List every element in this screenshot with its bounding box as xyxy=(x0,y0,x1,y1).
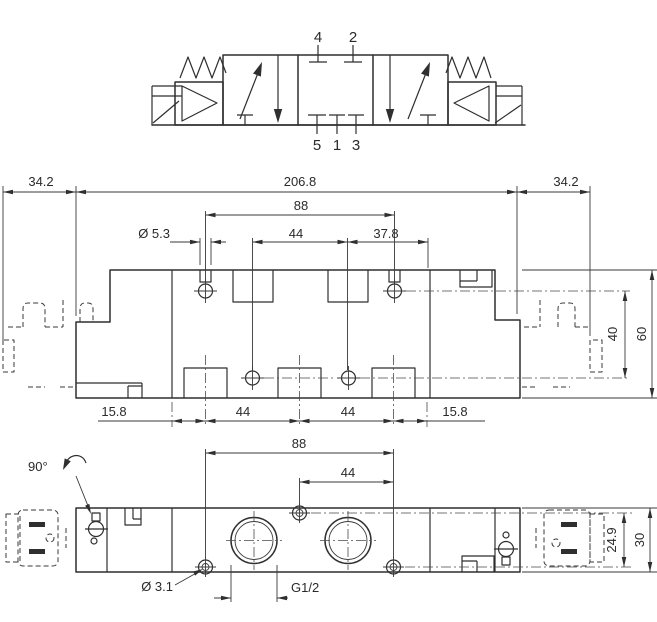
connector-pin xyxy=(561,549,577,554)
rotation-label: 90° xyxy=(28,459,48,474)
dim-body-depth: 30 xyxy=(632,533,647,547)
step-notch-detail xyxy=(462,556,494,572)
bottom-view: 88 44 90° Ø 3.1 G1/2 24.9 30 xyxy=(6,436,657,602)
connector-pin xyxy=(561,522,577,527)
port-label-2: 2 xyxy=(349,29,357,46)
bottom-view-dimensions: 88 44 90° Ø 3.1 G1/2 24.9 30 xyxy=(28,436,657,602)
left-solenoid-symbol xyxy=(152,57,226,125)
side-view: 34.2 206.8 34.2 88 Ø 5.3 44 37.8 15.8 44… xyxy=(3,174,657,427)
port-cutout xyxy=(233,270,273,302)
flow-arrow xyxy=(408,73,426,119)
right-spring-icon xyxy=(446,57,491,78)
dim-port-pitch-top: 44 xyxy=(289,226,303,241)
left-plug-connector-phantom xyxy=(3,300,93,387)
dim-body-length: 206.8 xyxy=(284,174,317,189)
port-label-1: 1 xyxy=(333,137,341,154)
dim-small-hole-dia: Ø 3.1 xyxy=(141,579,173,594)
thread-label: G1/2 xyxy=(291,580,319,595)
side-view-dimensions: 34.2 206.8 34.2 88 Ø 5.3 44 37.8 15.8 44… xyxy=(3,174,657,423)
manual-override-right xyxy=(494,532,518,565)
dim-edge-to-port-right: 15.8 xyxy=(442,404,467,419)
step-notch-detail xyxy=(460,270,492,287)
right-pilot-triangle-icon xyxy=(454,86,489,121)
body-section-lines xyxy=(107,508,495,572)
technical-drawing-page: 4 2 5 1 3 xyxy=(0,0,657,622)
dim-hole-row-offset: 24.9 xyxy=(604,527,619,552)
port-label-3: 3 xyxy=(352,137,360,154)
dim-hole-to-port: 44 xyxy=(341,465,355,480)
blocked-ports-top-icon xyxy=(309,55,362,62)
dim-port-pitch-1: 44 xyxy=(236,404,250,419)
valve-technical-drawing: 4 2 5 1 3 xyxy=(0,0,657,622)
left-spring-icon xyxy=(180,57,226,78)
small-mounting-holes xyxy=(195,503,404,577)
dim-port-pitch-2: 44 xyxy=(341,404,355,419)
dim-body-height: 60 xyxy=(634,327,649,341)
port-label-4: 4 xyxy=(314,29,322,46)
mounting-hole-symbols xyxy=(194,279,406,390)
blocked-port-icon xyxy=(420,115,436,125)
blocked-port-icon xyxy=(237,115,253,125)
port-cutout xyxy=(328,270,368,302)
connector-pin xyxy=(29,549,45,554)
end-plate-detail xyxy=(76,383,142,398)
dim-hole-span: 88 xyxy=(292,436,306,451)
right-plug-connector-phantom xyxy=(536,510,604,566)
valve-positions xyxy=(223,55,448,125)
dim-offset-right: 34.2 xyxy=(553,174,578,189)
step-notch-detail xyxy=(125,508,141,525)
left-pilot-triangle-icon xyxy=(182,86,217,121)
dim-edge-to-port-left: 15.8 xyxy=(101,404,126,419)
pneumatic-circuit-symbol: 4 2 5 1 3 xyxy=(152,29,525,154)
dim-hole-rows-span: 40 xyxy=(605,327,620,341)
dim-hole-span: 88 xyxy=(294,198,308,213)
valve-body-outline xyxy=(76,270,520,398)
left-plug-connector-phantom xyxy=(6,510,66,566)
dim-hole-dia: Ø 5.3 xyxy=(138,226,170,241)
connector-pin xyxy=(29,522,45,527)
port-label-5: 5 xyxy=(313,137,321,154)
valve-body-bottom-outline xyxy=(76,508,520,572)
blocked-ports-bottom-icon xyxy=(308,115,364,125)
flow-arrow xyxy=(240,73,258,119)
dim-pilot-offset: 37.8 xyxy=(373,226,398,241)
body-section-lines xyxy=(172,270,430,398)
right-solenoid-symbol xyxy=(446,57,522,125)
manual-override-left xyxy=(85,513,108,544)
dim-offset-left: 34.2 xyxy=(28,174,53,189)
